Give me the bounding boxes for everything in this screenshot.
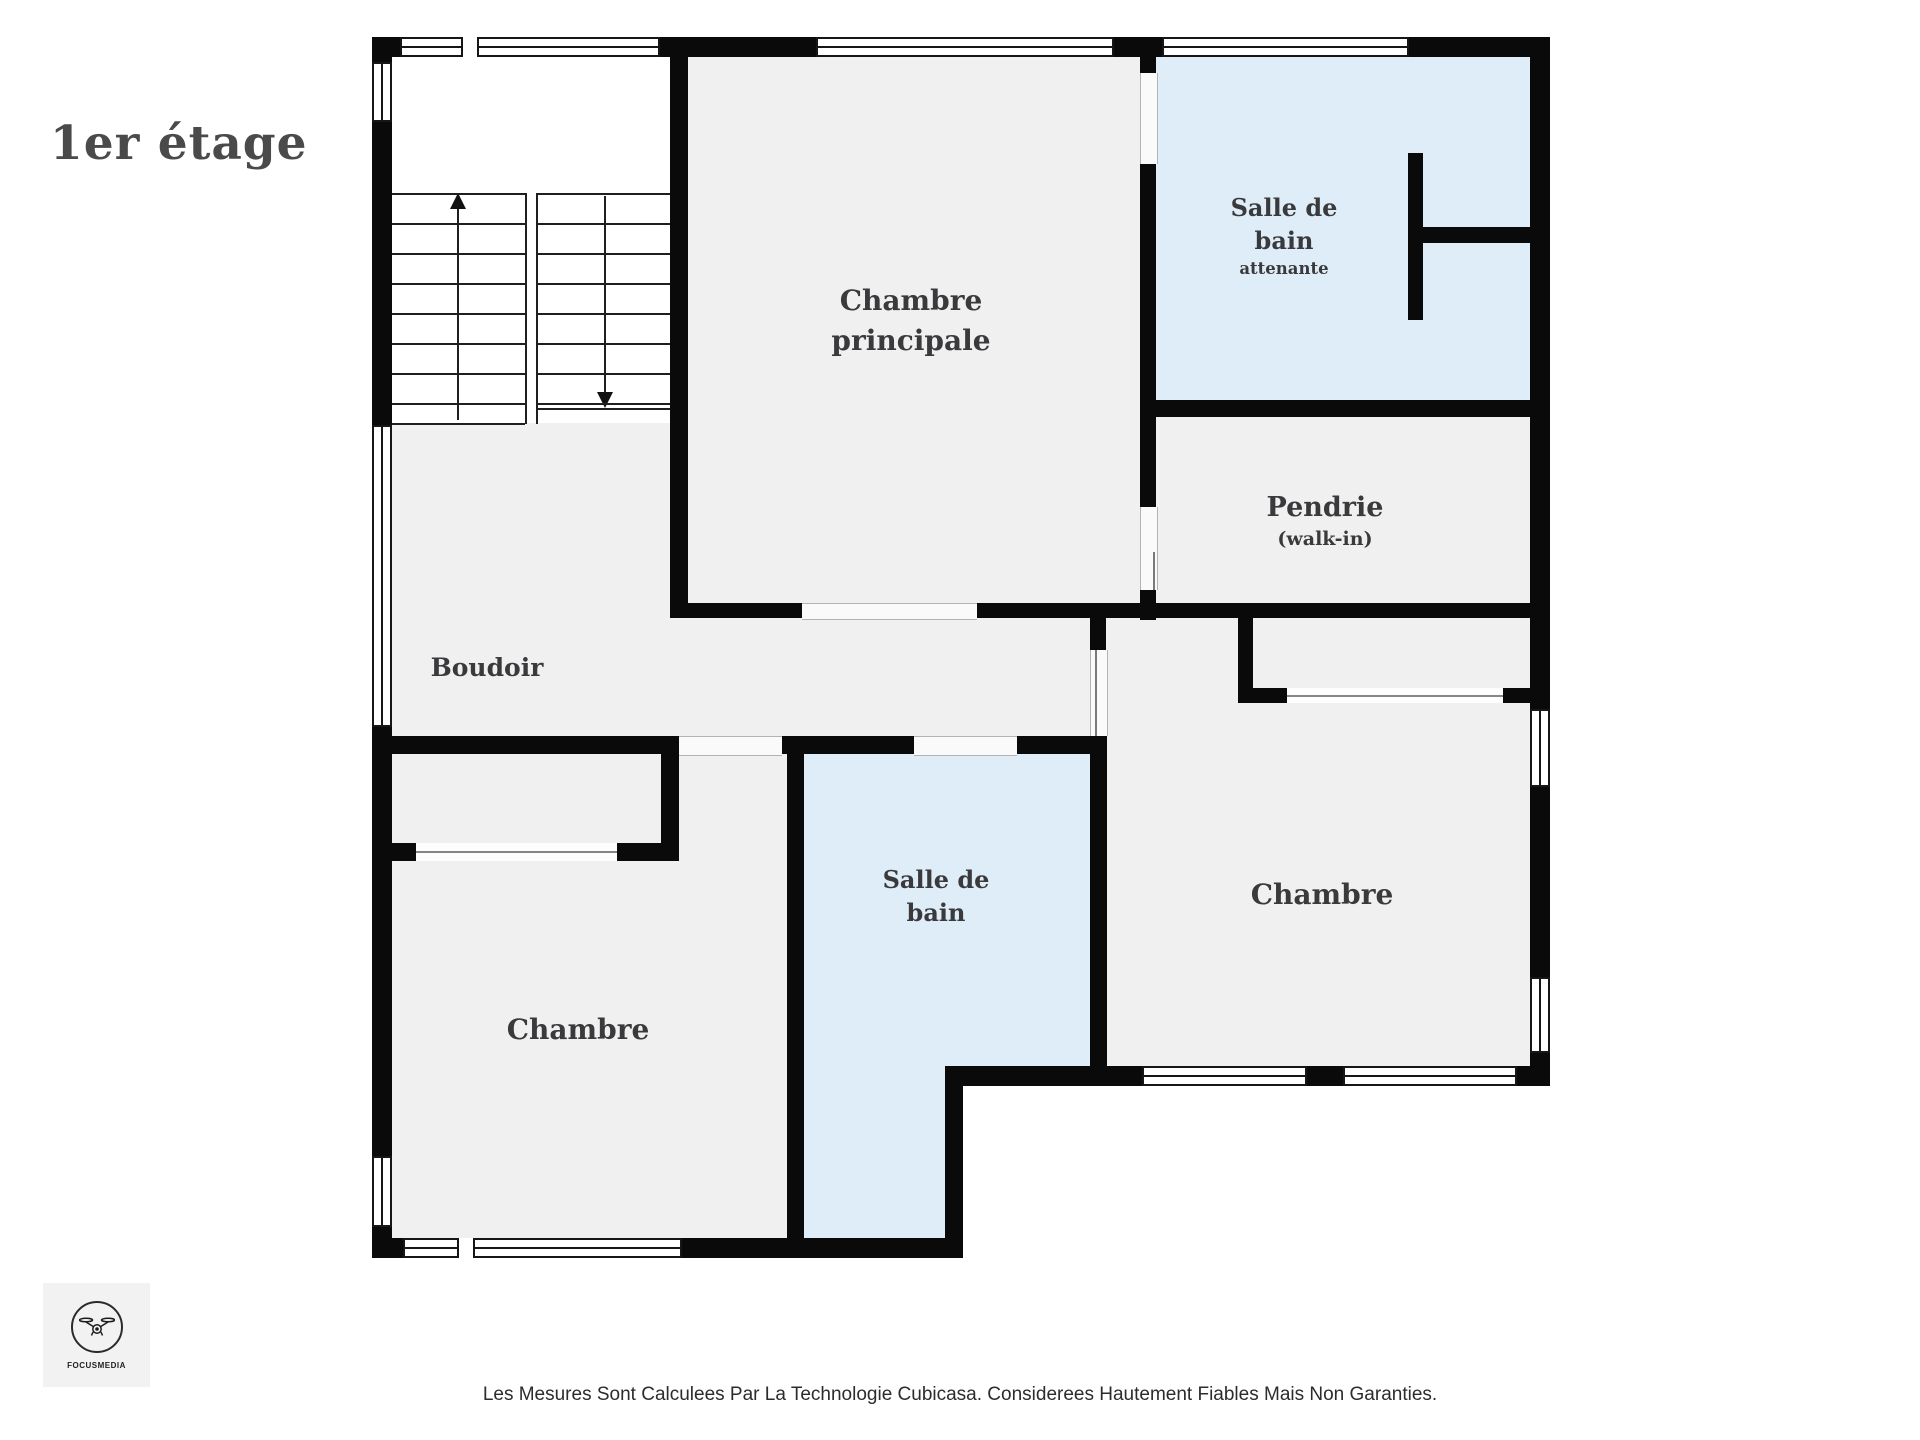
stair-tread xyxy=(392,403,525,405)
wall xyxy=(1140,164,1156,507)
stair-tread xyxy=(392,253,525,255)
stair-tread xyxy=(538,223,671,225)
wall xyxy=(660,37,816,57)
wall xyxy=(670,603,802,618)
room-label-boudoir: Boudoir xyxy=(431,651,544,685)
drone-icon xyxy=(79,1315,115,1339)
window-bedroom-right-side-b xyxy=(1530,977,1550,1053)
floor-stairwell xyxy=(392,57,670,423)
door-opening-ensuite xyxy=(1140,73,1158,164)
window-ensuite-top xyxy=(1162,37,1409,57)
wall xyxy=(372,727,392,1156)
door-opening-bedroom-right xyxy=(1090,650,1108,736)
disclaimer-text: Les Mesures Sont Calculees Par La Techno… xyxy=(483,1384,1437,1406)
stair-tread xyxy=(538,313,671,315)
room-label-walk-in: Pendrie (walk-in) xyxy=(1267,490,1384,552)
stair-tread xyxy=(392,223,525,225)
window-bedroom-right-side-a xyxy=(1530,709,1550,787)
wall xyxy=(1409,37,1550,57)
door-opening-master-bedroom xyxy=(802,603,977,620)
room-label-bedroom-right: Chambre xyxy=(1251,875,1394,915)
window-stairwell-left xyxy=(372,62,392,122)
stair-tread xyxy=(538,373,671,375)
room-label-ensuite-bathroom: Salle de bain attenante xyxy=(1231,191,1338,281)
wall xyxy=(372,37,400,57)
wall xyxy=(1530,787,1550,977)
door-leaf xyxy=(1153,552,1155,590)
wall xyxy=(1238,618,1253,703)
door-opening-bathroom-main xyxy=(914,736,1017,756)
door-leaf xyxy=(1095,650,1097,736)
stair-tread xyxy=(538,403,671,405)
wall xyxy=(945,1085,963,1258)
wall xyxy=(617,843,679,861)
logo: FOCUSMEDIA xyxy=(43,1283,150,1387)
up-arrow-icon xyxy=(450,193,466,209)
plan-canvas: Chambre principale Salle de bain attenan… xyxy=(0,0,1920,1440)
window-bedroom-right-bottom-b xyxy=(1343,1066,1517,1086)
wall xyxy=(1114,37,1162,57)
floor-bedroom-right xyxy=(1106,618,1530,1066)
stair-tread xyxy=(392,373,525,375)
wall xyxy=(1253,688,1287,703)
wall xyxy=(1422,227,1530,243)
down-arrow-shaft xyxy=(604,196,606,394)
wall xyxy=(1140,590,1156,620)
room-label-bathroom-main: Salle de bain xyxy=(883,863,990,929)
wall xyxy=(1140,57,1156,73)
wall xyxy=(1140,400,1550,417)
stair-tread xyxy=(392,313,525,315)
stair-tread xyxy=(392,423,525,425)
stair-tread xyxy=(392,283,525,285)
room-label-bedroom-left: Chambre xyxy=(507,1010,650,1050)
closet-track-right xyxy=(1287,688,1503,703)
stair-tread xyxy=(392,193,525,195)
window-bedroom-right-bottom-a xyxy=(1142,1066,1307,1086)
wall xyxy=(372,122,392,425)
window-bedroom-left-bottom xyxy=(403,1238,682,1258)
door-opening-walk-in xyxy=(1140,507,1158,590)
wall xyxy=(372,736,679,754)
floor-plan: 1er étage Chambre principale Salle de ba… xyxy=(0,0,1920,1440)
floor-boudoir xyxy=(392,423,670,736)
wall xyxy=(1090,617,1106,650)
wall xyxy=(392,843,416,861)
wall xyxy=(1090,736,1107,1066)
wall xyxy=(782,736,914,754)
wall xyxy=(1530,37,1550,709)
window-boudoir-left xyxy=(372,425,392,727)
floor-corridor xyxy=(670,618,1090,736)
stair-tread xyxy=(538,193,671,195)
stair-tread xyxy=(538,253,671,255)
wall xyxy=(787,754,804,1238)
down-arrow-icon xyxy=(597,392,613,408)
stair-divider xyxy=(525,193,527,424)
window-bedroom-left-side xyxy=(372,1156,392,1227)
floor-bathroom-main-lower xyxy=(804,1066,945,1238)
closet-track-left xyxy=(416,843,617,861)
wall xyxy=(1517,1066,1550,1086)
stair-tread xyxy=(392,343,525,345)
window-master-top xyxy=(816,37,1114,57)
wall xyxy=(1307,1066,1343,1086)
floor-bedroom-left xyxy=(392,754,787,1238)
stair-tread xyxy=(538,343,671,345)
wall xyxy=(945,1066,1142,1086)
logo-brand-text: FOCUSMEDIA xyxy=(43,1361,150,1370)
wall xyxy=(682,1238,963,1258)
wall xyxy=(977,603,1530,618)
logo-circle xyxy=(71,1301,123,1353)
wall xyxy=(1503,688,1530,703)
wall xyxy=(1408,153,1423,320)
room-label-master-bedroom: Chambre principale xyxy=(831,281,990,361)
door-opening-bedroom-left xyxy=(679,736,782,756)
wall xyxy=(372,1238,403,1258)
window-stairwell-top xyxy=(400,37,660,57)
stair-divider xyxy=(536,193,538,424)
wall xyxy=(670,57,688,617)
stair-tread xyxy=(538,283,671,285)
stair-tread xyxy=(538,408,671,410)
